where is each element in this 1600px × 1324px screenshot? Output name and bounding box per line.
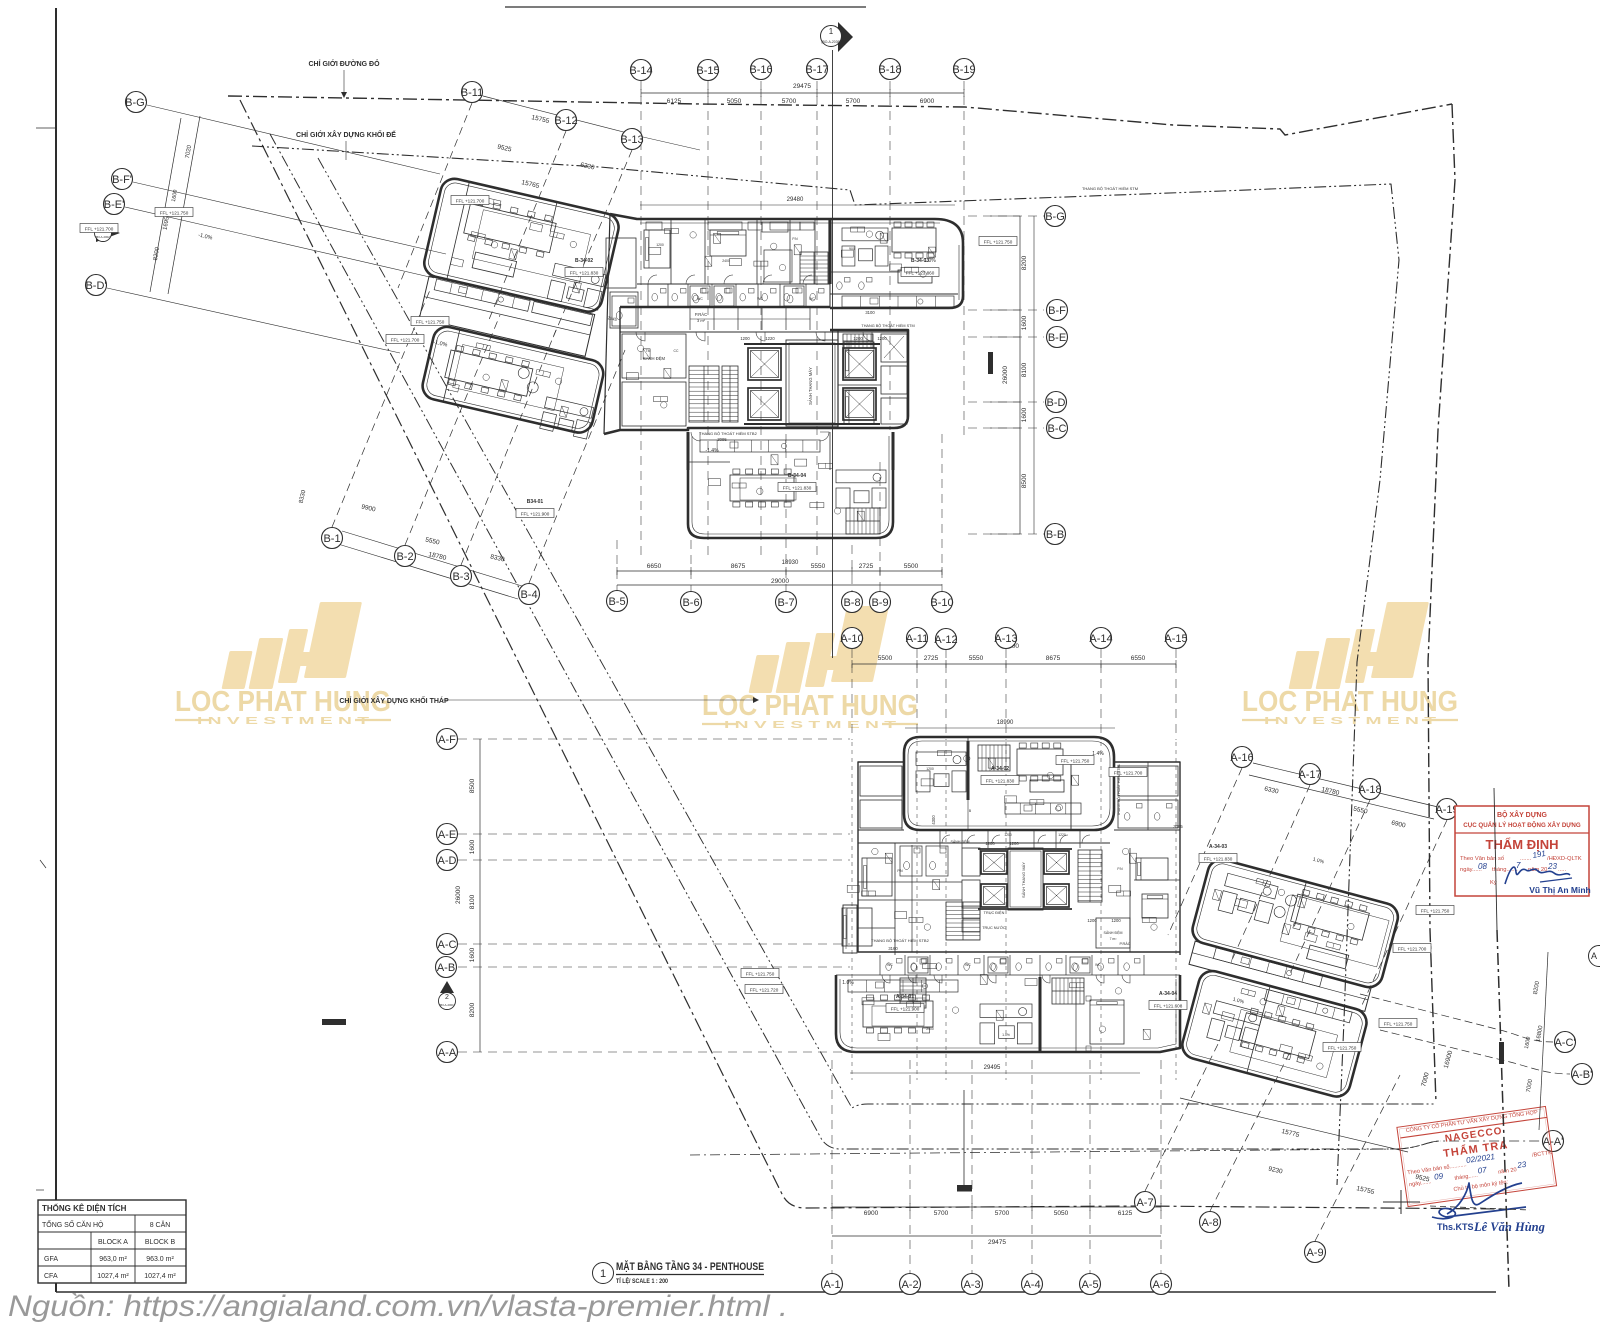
svg-text:6550: 6550 xyxy=(1131,655,1146,662)
svg-text:8200: 8200 xyxy=(1021,255,1028,270)
svg-text:7 m²: 7 m² xyxy=(1110,937,1118,941)
svg-text:2: 2 xyxy=(445,994,449,1001)
svg-text:09: 09 xyxy=(1434,1171,1445,1181)
svg-text:GFA: GFA xyxy=(44,1256,58,1263)
svg-text:900: 900 xyxy=(849,247,855,251)
svg-text:8100: 8100 xyxy=(469,894,476,909)
svg-text:29000: 29000 xyxy=(771,578,789,585)
svg-text:A-C': A-C' xyxy=(1554,1037,1575,1049)
svg-text:BLOCK A: BLOCK A xyxy=(98,1239,128,1246)
svg-text:A-34-04: A-34-04 xyxy=(1159,991,1177,997)
svg-text:B34-01: B34-01 xyxy=(527,499,544,505)
svg-text:B-1: B-1 xyxy=(323,533,340,545)
svg-text:5700: 5700 xyxy=(782,98,797,105)
svg-text:THANG BỘ THOÁT HIỂM STM: THANG BỘ THOÁT HIỂM STM xyxy=(1082,186,1138,191)
svg-text:.....: ..... xyxy=(1558,867,1566,873)
svg-text:29480: 29480 xyxy=(787,197,804,203)
svg-text:THANG BỘ THOÁT HIỂM STB2: THANG BỘ THOÁT HIỂM STB2 xyxy=(699,431,757,436)
svg-text:1200: 1200 xyxy=(985,841,995,846)
svg-text:B-D: B-D xyxy=(1047,397,1066,409)
svg-text:1: 1 xyxy=(829,27,834,36)
svg-text:5550: 5550 xyxy=(969,655,984,662)
svg-text:6650: 6650 xyxy=(647,563,662,570)
svg-text:A-14: A-14 xyxy=(1089,633,1112,645)
svg-text:FFL +121.750: FFL +121.750 xyxy=(1328,1045,1357,1050)
svg-text:FFL +121.830: FFL +121.830 xyxy=(783,485,812,490)
svg-text:5050: 5050 xyxy=(1054,1210,1069,1217)
svg-text:B-8: B-8 xyxy=(843,597,860,609)
svg-text:3 m²: 3 m² xyxy=(697,318,706,323)
svg-text:B-E': B-E' xyxy=(104,199,124,211)
svg-text:FFL +121.608: FFL +121.608 xyxy=(1154,1003,1183,1008)
svg-text:8675: 8675 xyxy=(731,563,746,570)
svg-text:LOC PHAT HUNG: LOC PHAT HUNG xyxy=(702,690,918,722)
svg-text:B-10: B-10 xyxy=(930,597,953,609)
svg-text:THANG BỘ THOÁT HIỂM STB2: THANG BỘ THOÁT HIỂM STB2 xyxy=(871,938,929,943)
svg-text:1220: 1220 xyxy=(765,336,775,341)
svg-text:WC: WC xyxy=(809,297,815,301)
svg-text:A-11: A-11 xyxy=(906,633,928,645)
svg-text:BỘ XÂY DỰNG: BỘ XÂY DỰNG xyxy=(1497,810,1548,819)
svg-text:1600: 1600 xyxy=(1021,407,1028,422)
svg-text:P.N: P.N xyxy=(1117,867,1123,871)
svg-text:FFL +121.750: FFL +121.750 xyxy=(1061,758,1090,763)
svg-text:A-B: A-B xyxy=(437,962,455,974)
svg-text:1600: 1600 xyxy=(1021,315,1028,330)
svg-text:B-E: B-E xyxy=(1048,332,1066,344)
svg-text:29495: 29495 xyxy=(984,1065,1001,1071)
svg-text:1.0%: 1.0% xyxy=(924,258,936,264)
svg-text:8675: 8675 xyxy=(1046,655,1061,662)
svg-text:2400: 2400 xyxy=(722,259,730,263)
svg-text:TRỤC ĐIỆN: TRỤC ĐIỆN xyxy=(984,910,1005,915)
svg-text:A-D: A-D xyxy=(438,855,457,867)
svg-text:CFA: CFA xyxy=(44,1273,58,1280)
svg-text:1220: 1220 xyxy=(1058,833,1066,837)
svg-text:23: 23 xyxy=(1516,1160,1528,1170)
svg-text:1027,4 m²: 1027,4 m² xyxy=(97,1273,129,1280)
svg-text:B-9: B-9 xyxy=(871,597,888,609)
svg-text:FFL +121.720: FFL +121.720 xyxy=(750,987,779,992)
svg-text:FFL +121.830: FFL +121.830 xyxy=(1204,856,1233,861)
svg-text:FFL +121.750: FFL +121.750 xyxy=(984,239,1013,244)
svg-text:B-14: B-14 xyxy=(629,65,652,77)
svg-text:A-A: A-A xyxy=(438,1047,457,1059)
svg-text:A-3: A-3 xyxy=(963,1279,980,1291)
svg-text:WC: WC xyxy=(965,963,971,967)
svg-text:963,0 m²: 963,0 m² xyxy=(99,1256,127,1263)
svg-text:A-9: A-9 xyxy=(1306,1247,1323,1259)
svg-text:4300: 4300 xyxy=(931,815,936,825)
svg-text:MẶT BẰNG TẦNG 34 - PENTHOUSE: MẶT BẰNG TẦNG 34 - PENTHOUSE xyxy=(616,1260,764,1273)
svg-text:2725: 2725 xyxy=(924,655,939,662)
svg-text:5050: 5050 xyxy=(727,98,742,105)
svg-text:29475: 29475 xyxy=(988,1239,1006,1246)
svg-text:A-18: A-18 xyxy=(1358,784,1381,796)
svg-text:FFL +121.750: FFL +121.750 xyxy=(160,210,189,215)
svg-text:5500: 5500 xyxy=(904,563,919,570)
svg-text:1: 1 xyxy=(600,1268,606,1280)
svg-text:P.RÁC: P.RÁC xyxy=(1119,942,1130,946)
svg-text:THANG BỘ THOÁT HIỂM STB1: THANG BỘ THOÁT HIỂM STB1 xyxy=(1116,764,1121,816)
svg-text:B-2: B-2 xyxy=(396,551,413,563)
svg-text:A-C: A-C xyxy=(438,939,457,951)
svg-text:A-E: A-E xyxy=(438,829,456,841)
svg-text:A-34-02: A-34-02 xyxy=(991,766,1009,772)
svg-text:B-B: B-B xyxy=(1046,529,1064,541)
svg-text:P.N: P.N xyxy=(792,237,798,241)
svg-text:1200: 1200 xyxy=(740,336,750,341)
svg-text:26000: 26000 xyxy=(455,886,462,904)
svg-text:1600: 1600 xyxy=(469,839,476,854)
svg-text:Vũ Thị An Minh: Vũ Thị An Minh xyxy=(1529,885,1591,895)
svg-text:FFL +121.750: FFL +121.750 xyxy=(416,319,445,324)
svg-text:FFL +121.750: FFL +121.750 xyxy=(746,971,775,976)
svg-text:(B3-A-2002): (B3-A-2002) xyxy=(95,235,110,239)
svg-text:5700: 5700 xyxy=(995,1210,1010,1217)
svg-text:A-13: A-13 xyxy=(994,633,1017,645)
svg-text:SẢNH THANG MÁY: SẢNH THANG MÁY xyxy=(808,367,813,405)
svg-text:1200: 1200 xyxy=(926,767,934,771)
svg-text:FFL +121.830: FFL +121.830 xyxy=(986,778,1015,783)
svg-text:I N V E S T M E N T: I N V E S T M E N T xyxy=(724,719,897,731)
svg-text:1200: 1200 xyxy=(853,336,863,341)
svg-text:Lê Văn Hùng: Lê Văn Hùng xyxy=(1473,1220,1545,1234)
svg-text:LOC PHAT HUNG: LOC PHAT HUNG xyxy=(1242,686,1458,718)
svg-text:A-12: A-12 xyxy=(934,634,957,646)
svg-text:23: 23 xyxy=(1547,862,1557,871)
svg-text:A-34-01: A-34-01 xyxy=(896,994,914,1000)
svg-text:A-10: A-10 xyxy=(840,633,863,645)
svg-text:FFL +121.700: FFL +121.700 xyxy=(391,337,420,342)
svg-text:(BO-A-2036): (BO-A-2036) xyxy=(821,40,840,44)
svg-text:A-4: A-4 xyxy=(1023,1279,1040,1291)
svg-text:B-7: B-7 xyxy=(777,597,794,609)
svg-text:A: A xyxy=(1591,951,1597,961)
svg-text:B-16: B-16 xyxy=(749,64,772,76)
svg-text:B-15: B-15 xyxy=(696,65,719,77)
svg-text:3095: 3095 xyxy=(1173,824,1183,829)
svg-text:18930: 18930 xyxy=(782,560,799,566)
svg-text:B-F: B-F xyxy=(1048,305,1066,317)
svg-text:SẢNH ĐỆM: SẢNH ĐỆM xyxy=(951,839,970,844)
svg-text:A-1: A-1 xyxy=(823,1279,840,1291)
svg-text:1200: 1200 xyxy=(877,336,887,341)
svg-text:5500: 5500 xyxy=(878,655,893,662)
svg-text:THỐNG KÊ DIỆN TÍCH: THỐNG KÊ DIỆN TÍCH xyxy=(42,1203,127,1213)
svg-text:A-17: A-17 xyxy=(1298,769,1321,781)
svg-text:B-12: B-12 xyxy=(554,115,577,127)
svg-text:WC: WC xyxy=(1095,963,1101,967)
svg-text:FFL +121.700: FFL +121.700 xyxy=(1398,946,1427,951)
svg-text:1200: 1200 xyxy=(656,243,664,247)
svg-text:WC: WC xyxy=(887,963,893,967)
svg-text:8 CĂN: 8 CĂN xyxy=(150,1220,171,1229)
svg-text:B-F': B-F' xyxy=(112,174,132,186)
svg-text:CC: CC xyxy=(674,349,679,353)
svg-text:08: 08 xyxy=(1478,862,1487,871)
svg-text:963.0 m²: 963.0 m² xyxy=(146,1256,174,1263)
svg-text:1600: 1600 xyxy=(469,947,476,962)
svg-text:BLOCK B: BLOCK B xyxy=(145,1239,176,1246)
svg-text:07: 07 xyxy=(1477,1165,1488,1175)
svg-text:1200: 1200 xyxy=(1111,918,1121,923)
svg-text:SẢNH THANG MÁY: SẢNH THANG MÁY xyxy=(1021,862,1026,898)
svg-text:WC: WC xyxy=(697,297,703,301)
svg-text:Nguồn: https://angialand.com.v: Nguồn: https://angialand.com.vn/vlasta-p… xyxy=(8,1290,788,1323)
svg-text:3100: 3100 xyxy=(865,310,875,315)
svg-text:FFL +121.900: FFL +121.900 xyxy=(521,511,550,516)
svg-text:7: 7 xyxy=(1516,861,1521,870)
svg-text:B-17: B-17 xyxy=(805,64,828,76)
svg-text:THANG BỘ THOÁT HIỂM STM: THANG BỘ THOÁT HIỂM STM xyxy=(861,323,914,328)
svg-text:P.RÁC: P.RÁC xyxy=(695,312,707,317)
svg-text:26000: 26000 xyxy=(1002,366,1009,384)
svg-text:3160: 3160 xyxy=(888,946,898,951)
svg-text:1.0%: 1.0% xyxy=(1002,1033,1010,1037)
svg-text:B-5: B-5 xyxy=(608,596,625,608)
svg-text:2400: 2400 xyxy=(926,1027,934,1031)
svg-text:5700: 5700 xyxy=(934,1210,949,1217)
svg-text:P.N: P.N xyxy=(897,869,903,873)
svg-text:(B3-A-2001): (B3-A-2001) xyxy=(439,1003,454,1007)
svg-text:1200: 1200 xyxy=(1087,918,1097,923)
svg-text:SẢNH ĐỆM: SẢNH ĐỆM xyxy=(643,356,666,361)
svg-text:8500: 8500 xyxy=(1021,473,1028,488)
svg-text:A-16: A-16 xyxy=(1230,752,1253,764)
svg-text:B-4: B-4 xyxy=(520,589,537,601)
svg-text:8200: 8200 xyxy=(469,1002,476,1017)
svg-text:B-13: B-13 xyxy=(620,134,643,146)
svg-text:B-34-02: B-34-02 xyxy=(575,258,593,264)
svg-text:TRỤC NƯỚC: TRỤC NƯỚC xyxy=(982,925,1006,930)
svg-text:5700: 5700 xyxy=(846,98,861,105)
svg-text:TỈ LỆ/ SCALE 1 : 200: TỈ LỆ/ SCALE 1 : 200 xyxy=(616,1277,669,1285)
svg-text:1027,4 m²: 1027,4 m² xyxy=(144,1273,176,1280)
svg-text:.......: ....... xyxy=(1520,856,1532,862)
svg-text:A-A': A-A' xyxy=(1543,1136,1563,1148)
svg-text:6900: 6900 xyxy=(920,98,935,105)
svg-text:B-C: B-C xyxy=(1048,423,1067,435)
svg-text:A-5: A-5 xyxy=(1081,1279,1098,1291)
svg-text:A-7: A-7 xyxy=(1136,1197,1153,1209)
svg-text:6125: 6125 xyxy=(667,98,682,105)
svg-text:FFL +121.700: FFL +121.700 xyxy=(456,198,485,203)
svg-text:1.0%: 1.0% xyxy=(842,980,854,986)
svg-text:5550: 5550 xyxy=(811,563,826,570)
svg-text:A-6: A-6 xyxy=(1152,1279,1169,1291)
svg-text:B-3: B-3 xyxy=(452,571,469,583)
svg-text:1200: 1200 xyxy=(1004,833,1012,837)
svg-text:3095: 3095 xyxy=(717,437,727,442)
svg-text:A-B': A-B' xyxy=(1572,1069,1592,1081)
svg-text:B-G': B-G' xyxy=(125,97,147,109)
svg-text:FFL +121.830: FFL +121.830 xyxy=(570,270,599,275)
svg-text:B-G: B-G xyxy=(1045,211,1065,223)
svg-text:18990: 18990 xyxy=(997,720,1014,726)
svg-text:B-6: B-6 xyxy=(682,597,699,609)
svg-text:TM: TM xyxy=(646,349,651,353)
svg-text:B-D': B-D' xyxy=(85,280,106,292)
svg-text:A-8: A-8 xyxy=(1201,1217,1218,1229)
svg-text:6900: 6900 xyxy=(864,1210,879,1217)
svg-text:B-18: B-18 xyxy=(878,64,901,76)
svg-text:FFL +121.750: FFL +121.750 xyxy=(1421,908,1450,913)
svg-text:B-34-04: B-34-04 xyxy=(788,473,806,479)
svg-text:CỤC QUẢN LÝ HOẠT ĐỘNG XÂY DỰNG: CỤC QUẢN LÝ HOẠT ĐỘNG XÂY DỰNG xyxy=(1463,821,1581,829)
svg-text:B-11: B-11 xyxy=(461,87,483,99)
svg-text:1200: 1200 xyxy=(1009,841,1019,846)
svg-text:8100: 8100 xyxy=(1021,362,1028,377)
svg-text:Ths.KTS: Ths.KTS xyxy=(1437,1222,1474,1232)
svg-text:I N V E S T M E N T: I N V E S T M E N T xyxy=(197,715,370,727)
svg-text:I N V E S T M E N T: I N V E S T M E N T xyxy=(1264,715,1437,727)
svg-text:8500: 8500 xyxy=(469,778,476,793)
svg-text:6125: 6125 xyxy=(1118,1210,1133,1217)
svg-text:-1.4%: -1.4% xyxy=(705,448,719,454)
svg-text:B-19: B-19 xyxy=(952,64,975,76)
svg-text:THẨM ĐỊNH: THẨM ĐỊNH xyxy=(1486,837,1559,852)
svg-text:29475: 29475 xyxy=(793,83,811,90)
svg-text:WC: WC xyxy=(757,297,763,301)
svg-text:2725: 2725 xyxy=(859,563,874,570)
svg-text:SẢNH ĐỆM: SẢNH ĐỆM xyxy=(1104,930,1123,935)
svg-text:FFL +121.750: FFL +121.750 xyxy=(1384,1021,1413,1026)
svg-text:1.4%: 1.4% xyxy=(1092,751,1104,757)
svg-text:A-2: A-2 xyxy=(901,1279,918,1291)
svg-text:A-F: A-F xyxy=(438,734,456,746)
svg-text:A-34-03: A-34-03 xyxy=(1209,844,1227,850)
svg-text:CHỈ GIỚI ĐƯỜNG ĐỎ: CHỈ GIỚI ĐƯỜNG ĐỎ xyxy=(308,59,380,68)
svg-text:FFL +121.700: FFL +121.700 xyxy=(85,226,114,231)
svg-text:A-15: A-15 xyxy=(1164,633,1187,645)
